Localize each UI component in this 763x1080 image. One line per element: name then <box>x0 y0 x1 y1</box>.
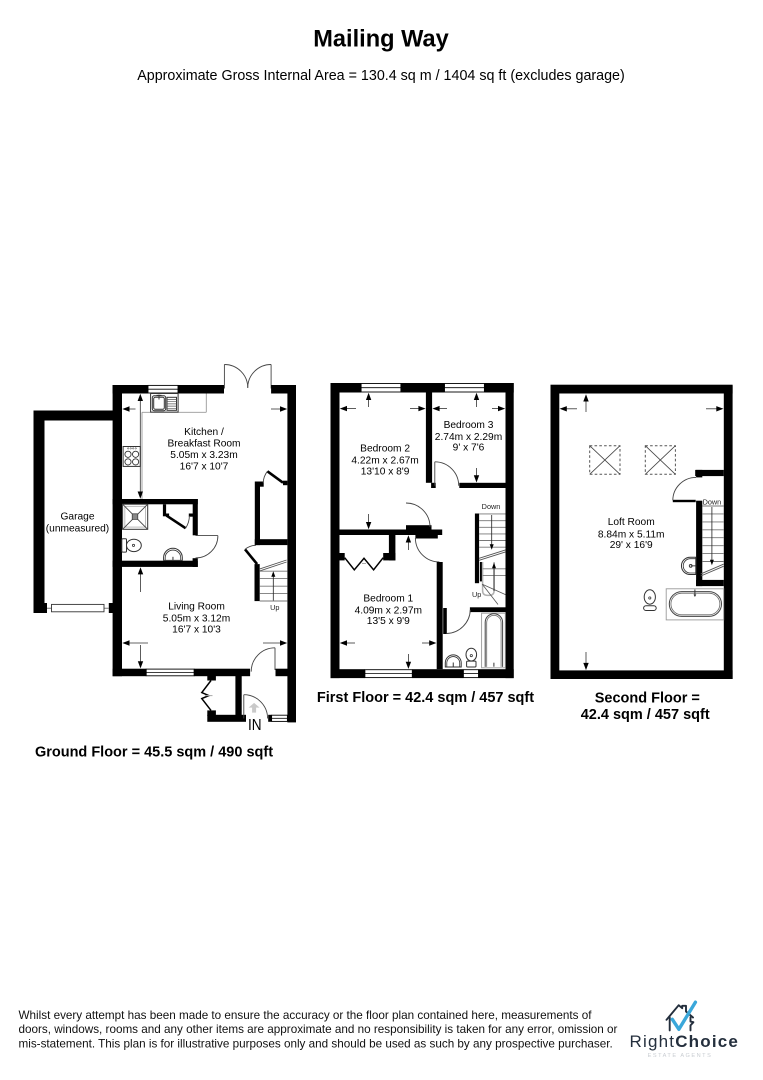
svg-text:IN: IN <box>248 717 262 734</box>
svg-text:Living Room: Living Room <box>168 601 225 612</box>
svg-text:5.05m x 3.23m: 5.05m x 3.23m <box>170 450 237 461</box>
svg-text:16'7 x 10'7: 16'7 x 10'7 <box>180 461 229 472</box>
svg-text:Ground Floor = 45.5 sqm / 490: Ground Floor = 45.5 sqm / 490 sqft <box>35 744 273 760</box>
svg-text:9' x 7'6: 9' x 7'6 <box>453 443 485 454</box>
svg-text:16'7 x 10'3: 16'7 x 10'3 <box>172 625 221 636</box>
svg-text:Down: Down <box>703 497 722 506</box>
svg-text:4.22m x 2.67m: 4.22m x 2.67m <box>351 456 418 467</box>
svg-text:Mailing Way: Mailing Way <box>313 27 448 53</box>
svg-text:Bedroom 1: Bedroom 1 <box>363 594 413 605</box>
svg-text:ESTATE AGENTS: ESTATE AGENTS <box>648 1053 713 1059</box>
svg-text:5.05m x 3.12m: 5.05m x 3.12m <box>163 614 230 625</box>
svg-text:Kitchen /: Kitchen / <box>184 427 224 438</box>
svg-text:Loft Room: Loft Room <box>608 517 655 528</box>
svg-text:Whilst every attempt has been: Whilst every attempt has been made to en… <box>19 1009 593 1022</box>
svg-text:Up: Up <box>270 603 279 612</box>
svg-text:Second Floor =: Second Floor = <box>595 690 700 706</box>
svg-text:(unmeasured): (unmeasured) <box>46 524 109 535</box>
svg-text:42.4 sqm / 457 sqft: 42.4 sqm / 457 sqft <box>581 707 710 723</box>
svg-text:Breakfast Room: Breakfast Room <box>167 438 240 449</box>
svg-text:mis-statement. This plan is fo: mis-statement. This plan is for illustra… <box>19 1038 613 1051</box>
svg-text:Approximate Gross Internal Are: Approximate Gross Internal Area = 130.4 … <box>137 68 625 84</box>
svg-text:Garage: Garage <box>61 512 95 523</box>
svg-text:8.84m x 5.11m: 8.84m x 5.11m <box>598 529 665 540</box>
svg-text:29' x 16'9: 29' x 16'9 <box>610 540 653 551</box>
svg-text:2.74m x 2.29m: 2.74m x 2.29m <box>435 432 502 443</box>
svg-text:Bedroom 3: Bedroom 3 <box>444 420 494 431</box>
svg-text:4.09m x 2.97m: 4.09m x 2.97m <box>355 606 422 617</box>
svg-text:13'10 x 8'9: 13'10 x 8'9 <box>361 467 410 478</box>
svg-text:Down: Down <box>482 502 501 511</box>
svg-text:Bedroom 2: Bedroom 2 <box>360 444 410 455</box>
svg-text:First Floor = 42.4 sqm / 457 s: First Floor = 42.4 sqm / 457 sqft <box>317 690 534 706</box>
svg-text:RightChoice: RightChoice <box>630 1032 740 1051</box>
svg-text:Up: Up <box>472 590 481 599</box>
svg-text:doors, windows, rooms and any: doors, windows, rooms and any other item… <box>19 1023 618 1036</box>
svg-text:13'5 x 9'9: 13'5 x 9'9 <box>367 616 410 627</box>
